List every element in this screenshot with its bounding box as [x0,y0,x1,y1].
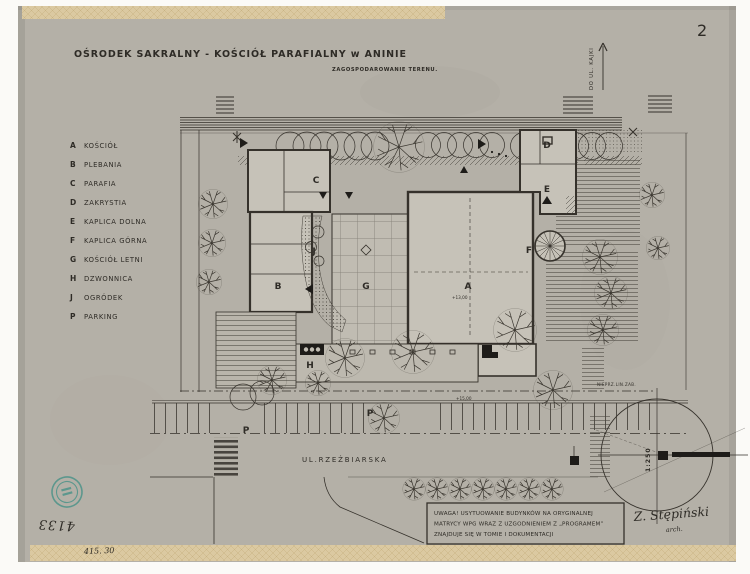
marker-G: G [362,282,369,292]
page-subtitle: ZAGOSPODAROWANIE TERENU. [332,67,438,73]
note-line-1: UWAGA! USYTUOWANIE BUDYNKÓW NA ORYGINALN… [434,510,593,517]
north-bar [672,452,730,457]
legend-label: OGRÓDEK [84,293,123,302]
architect-role: arch. [666,525,683,534]
small-structure [570,456,579,465]
site-plan-svg: OŚRODEK SAKRALNY - KOŚCIÓŁ PARAFIALNY w … [0,0,750,574]
marker-E: E [544,185,550,195]
zebra-crossing [214,437,238,477]
marker-A: A [465,282,472,292]
elevation-upper: +13,00 [452,295,468,300]
legend-key: B [70,160,76,169]
building-church [408,192,533,344]
street-label-top: DO UL. KAJKI [589,47,595,90]
marker-B: B [275,282,282,292]
legend-key: C [70,179,76,188]
inventory-number: 4133 [37,516,76,533]
marker-F: F [526,246,532,256]
legend-label: DZWONNICA [84,275,133,283]
parking-stalls [436,403,654,430]
legend-key: E [70,217,76,226]
street-label-bottom: UL.RZEŹBIARSKA [302,455,388,464]
marker-D: D [543,141,550,151]
legend-key: P [70,312,76,321]
legend-label: KOŚCIÓŁ [84,141,118,150]
legend-label: KAPLICA DOLNA [84,218,146,226]
margin-note: 415. 30 [83,546,115,556]
note-line-3: ZNAJDUJE SIĘ W TOMIE I DOKUMENTACJI [434,532,554,538]
legend-label: PLEBANIA [84,161,122,169]
legend-key: D [70,198,77,207]
parking-stalls [152,403,212,433]
page-title: OŚRODEK SAKRALNY - KOŚCIÓŁ PARAFIALNY w … [74,48,407,60]
marker-J: J [311,247,315,257]
legend-key: A [70,141,76,150]
legend-label: KOŚCIÓŁ LETNI [84,255,143,264]
legend-key: J [69,293,73,302]
legend-label: KAPLICA GÓRNA [84,236,147,245]
legend-label: ZAKRYSTIA [84,199,127,207]
legend-key: H [70,274,77,283]
legend-key: F [70,236,76,245]
marker-C: C [313,176,320,186]
building-line-label: NIEPRZ.LIN.ZAB. [597,382,636,387]
note-line-2: MATRYCY WPG WRAZ Z UZGODNIENIEM Z „PROGR… [434,522,604,528]
parking-stalls [254,403,372,433]
legend-label: PARAFIA [84,180,116,188]
scale-label: 1:250 [645,447,652,472]
elevation-lower: +15,00 [456,396,472,401]
legend-label: PARKING [84,313,118,321]
page-number: 2 [697,21,707,40]
legend-key: G [70,255,77,264]
scanned-drawing-sheet: OŚRODEK SAKRALNY - KOŚCIÓŁ PARAFIALNY w … [0,0,750,574]
marker-P2: P [367,409,374,419]
marker-H: H [306,361,314,371]
marker-P1: P [243,426,250,436]
